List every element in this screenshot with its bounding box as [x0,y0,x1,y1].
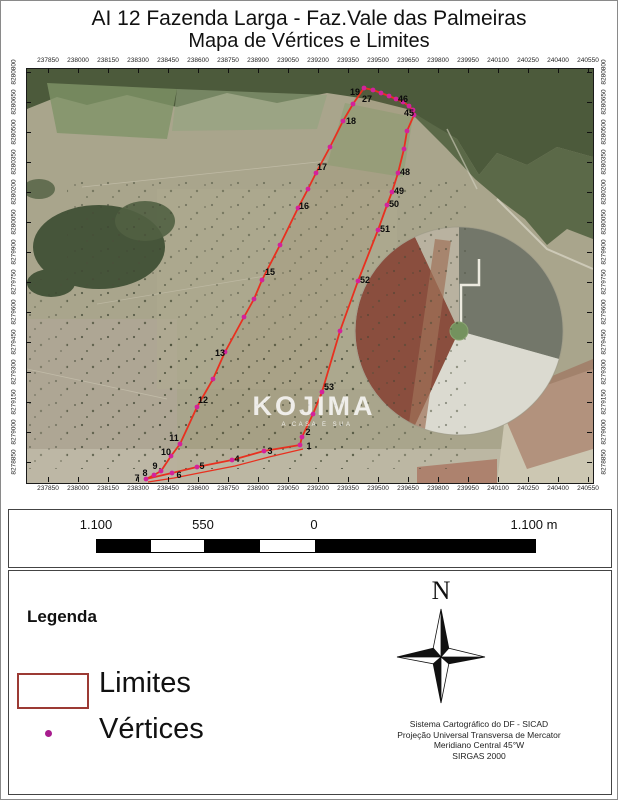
northing-label-right: 8279600 [601,299,608,324]
vertex-number: 48 [400,167,410,177]
vertex-number: 16 [299,201,309,211]
vertex-number: 6 [176,470,181,480]
northing-label-right: 8279300 [601,359,608,384]
northing-label-right: 8278850 [601,449,608,474]
easting-label-top: 238450 [157,57,179,64]
vertex-dot [338,329,343,334]
tick-mark [26,372,31,373]
vertex-number: 49 [394,186,404,196]
tick-mark [587,72,592,73]
vertex-dot [278,243,283,248]
vertex-number: 51 [380,224,390,234]
northing-label-left: 8280800 [11,59,18,84]
vertex-number: 3 [267,446,272,456]
northing-label-left: 8279750 [11,269,18,294]
tick-mark [587,102,592,103]
easting-label-bottom: 238150 [97,485,119,492]
tick-mark [378,68,379,73]
vertex-number: 17 [317,162,327,172]
easting-label-bottom: 239500 [367,485,389,492]
projection-line: Meridiano Central 45°W [339,740,618,751]
easting-label-bottom: 239350 [337,485,359,492]
tick-mark [26,252,31,253]
vertex-dot [405,129,410,134]
vertex-number: 52 [360,275,370,285]
vertex-dot [379,91,384,96]
tick-mark [26,132,31,133]
easting-label-bottom: 239800 [427,485,449,492]
tick-mark [587,312,592,313]
legend-section: Legenda Limites Vértices N Sistema Carto… [8,570,612,795]
tick-mark [587,282,592,283]
tick-mark [26,282,31,283]
tick-mark [228,68,229,73]
map-title: AI 12 Fazenda Larga - Faz.Vale das Palme… [1,7,617,30]
tick-mark [198,477,199,482]
title-block: AI 12 Fazenda Larga - Faz.Vale das Palme… [1,7,617,52]
tick-mark [26,432,31,433]
easting-label-bottom: 239950 [457,485,479,492]
northing-label-right: 8279750 [601,269,608,294]
vertex-dot [351,102,356,107]
vertex-number: 27 [362,94,372,104]
tick-mark [438,68,439,73]
scale-segment [97,540,151,552]
northing-label-left: 8280050 [11,209,18,234]
tick-mark [587,462,592,463]
projection-line: SIRGAS 2000 [339,751,618,762]
easting-label-top: 239500 [367,57,389,64]
map-sheet: AI 12 Fazenda Larga - Faz.Vale das Palme… [0,0,618,800]
easting-label-bottom: 239650 [397,485,419,492]
tick-mark [587,432,592,433]
map-frame: 1927464518171615131211109876543214849505… [26,68,594,484]
northing-label-left: 8279450 [11,329,18,354]
tick-mark [108,68,109,73]
tick-mark [528,477,529,482]
northing-label-right: 8280200 [601,179,608,204]
vertex-number: 2 [305,427,310,437]
tick-mark [26,102,31,103]
northing-label-left: 8279000 [11,419,18,444]
northing-label-right: 8279900 [601,239,608,264]
tick-mark [258,477,259,482]
tick-mark [26,462,31,463]
vertex-dot [298,443,303,448]
northing-label-right: 8280800 [601,59,608,84]
easting-label-top: 239350 [337,57,359,64]
vertex-dot [328,145,333,150]
vertex-dot [387,94,392,99]
vertex-dot [152,473,157,478]
tick-mark [468,477,469,482]
watermark-subtext: A CASA É SUA [281,421,352,428]
vertex-dot [260,278,265,283]
northing-label-left: 8280200 [11,179,18,204]
northing-label-left: 8280350 [11,149,18,174]
northing-label-left: 8279300 [11,359,18,384]
vertex-number: 15 [265,267,275,277]
tick-mark [558,477,559,482]
tick-mark [498,68,499,73]
tick-mark [228,477,229,482]
compass-north-label: N [432,576,451,605]
tick-mark [108,477,109,482]
northing-label-right: 8280050 [601,209,608,234]
easting-label-bottom: 240250 [517,485,539,492]
easting-label-top: 239800 [427,57,449,64]
tick-mark [138,68,139,73]
vertex-dot [402,147,407,152]
tick-mark [558,68,559,73]
tick-mark [48,477,49,482]
tick-mark [468,68,469,73]
easting-label-top: 239650 [397,57,419,64]
northing-label-left: 8280500 [11,119,18,144]
tick-mark [26,312,31,313]
northing-label-left: 8278850 [11,449,18,474]
easting-label-bottom: 238300 [127,485,149,492]
legend-item-vertices: Vértices [99,713,204,746]
easting-label-bottom: 240550 [577,485,599,492]
vertex-dot [362,86,367,91]
vertex-number: 9 [152,461,157,471]
easting-label-top: 239200 [307,57,329,64]
tick-mark [258,68,259,73]
map-subtitle: Mapa de Vértices e Limites [1,30,617,52]
easting-label-bottom: 238000 [67,485,89,492]
easting-label-top: 240550 [577,57,599,64]
northing-label-right: 8280500 [601,119,608,144]
vertex-number: 46 [398,94,408,104]
scale-bar-section: 1.10055001.100 m [8,509,612,568]
tick-mark [378,477,379,482]
tick-mark [408,477,409,482]
tick-mark [48,68,49,73]
scale-label: 1.100 m [511,517,558,532]
northing-label-right: 8279150 [601,389,608,414]
vertex-number: 4 [234,454,239,464]
vertex-number: 13 [215,348,225,358]
compass-rose-icon: N [391,575,491,715]
vertex-number: 10 [161,447,171,457]
easting-label-bottom: 240100 [487,485,509,492]
aerial-map-image: 1927464518171615131211109876543214849505… [27,69,593,483]
tick-mark [78,477,79,482]
tick-mark [587,132,592,133]
easting-label-bottom: 237850 [37,485,59,492]
vertex-dot [211,377,216,382]
vertex-dot [159,469,164,474]
tick-mark [26,192,31,193]
easting-label-bottom: 239200 [307,485,329,492]
easting-label-top: 238600 [187,57,209,64]
vertex-number: 19 [350,87,360,97]
tick-mark [78,68,79,73]
scale-segment [204,540,260,552]
scale-segment [260,540,316,552]
northing-label-left: 8280650 [11,89,18,114]
tick-mark [26,402,31,403]
tick-mark [198,68,199,73]
tick-mark [438,477,439,482]
projection-line: Sistema Cartográfico do DF - SICAD [339,719,618,730]
easting-label-top: 238900 [247,57,269,64]
watermark-text: KOJIMA [252,391,375,421]
easting-label-top: 240250 [517,57,539,64]
tick-mark [26,342,31,343]
vertex-dot [341,119,346,124]
vertex-number: 18 [346,116,356,126]
tick-mark [587,402,592,403]
scale-label: 1.100 [80,517,113,532]
projection-info: Sistema Cartográfico do DF - SICADProjeç… [339,719,618,761]
easting-label-bottom: 239050 [277,485,299,492]
northing-label-right: 8280350 [601,149,608,174]
easting-label-top: 239050 [277,57,299,64]
scale-bar [96,539,536,553]
northing-label-left: 8279900 [11,239,18,264]
easting-label-bottom: 238750 [217,485,239,492]
vertex-dot [262,449,267,454]
northing-label-right: 8279000 [601,419,608,444]
tick-mark [587,372,592,373]
tick-mark [408,68,409,73]
tick-mark [587,342,592,343]
tick-mark [348,68,349,73]
vertex-number: 8 [142,468,147,478]
easting-label-top: 238000 [67,57,89,64]
tick-mark [318,68,319,73]
vertex-number: 1 [306,441,311,451]
tick-mark [498,477,499,482]
vertex-number: 45 [404,108,414,118]
easting-label-top: 240400 [547,57,569,64]
easting-label-top: 239950 [457,57,479,64]
legend-title: Legenda [27,607,97,627]
easting-label-top: 240100 [487,57,509,64]
tick-mark [288,68,289,73]
easting-label-bottom: 240400 [547,485,569,492]
tick-mark [168,68,169,73]
tick-mark [588,477,589,482]
tick-mark [138,477,139,482]
tick-mark [26,72,31,73]
easting-label-top: 238300 [127,57,149,64]
easting-label-bottom: 238600 [187,485,209,492]
scale-segment [315,540,535,552]
vertex-dot [242,315,247,320]
northing-label-left: 8279600 [11,299,18,324]
vertex-dot [252,297,257,302]
vertex-number: 11 [169,433,179,443]
tick-mark [587,252,592,253]
tick-mark [288,477,289,482]
vertex-dot [306,187,311,192]
tick-mark [318,477,319,482]
legend-item-limites: Limites [99,667,191,700]
tick-mark [587,162,592,163]
tick-mark [587,222,592,223]
easting-label-top: 237850 [37,57,59,64]
tick-mark [587,192,592,193]
limits-symbol [17,673,89,709]
tick-mark [26,162,31,163]
vertex-number: 12 [198,395,208,405]
northing-label-right: 8280650 [601,89,608,114]
vertex-number: 5 [199,461,204,471]
easting-label-bottom: 238450 [157,485,179,492]
northing-label-right: 8279450 [601,329,608,354]
easting-label-top: 238750 [217,57,239,64]
scale-label: 0 [310,517,317,532]
easting-label-top: 238150 [97,57,119,64]
northing-label-left: 8279150 [11,389,18,414]
tick-mark [168,477,169,482]
vertex-dot [300,435,305,440]
scale-label: 550 [192,517,214,532]
projection-line: Projeção Universal Transversa de Mercato… [339,730,618,741]
tick-mark [348,477,349,482]
easting-label-bottom: 238900 [247,485,269,492]
tick-mark [26,222,31,223]
vertex-number: 50 [389,199,399,209]
vertex-dot [195,405,200,410]
vertex-dot [170,471,175,476]
scale-segment [151,540,205,552]
vertex-dot [371,88,376,93]
map-block: 1927464518171615131211109876543214849505… [8,56,612,506]
vertex-symbol [45,730,52,737]
tick-mark [528,68,529,73]
